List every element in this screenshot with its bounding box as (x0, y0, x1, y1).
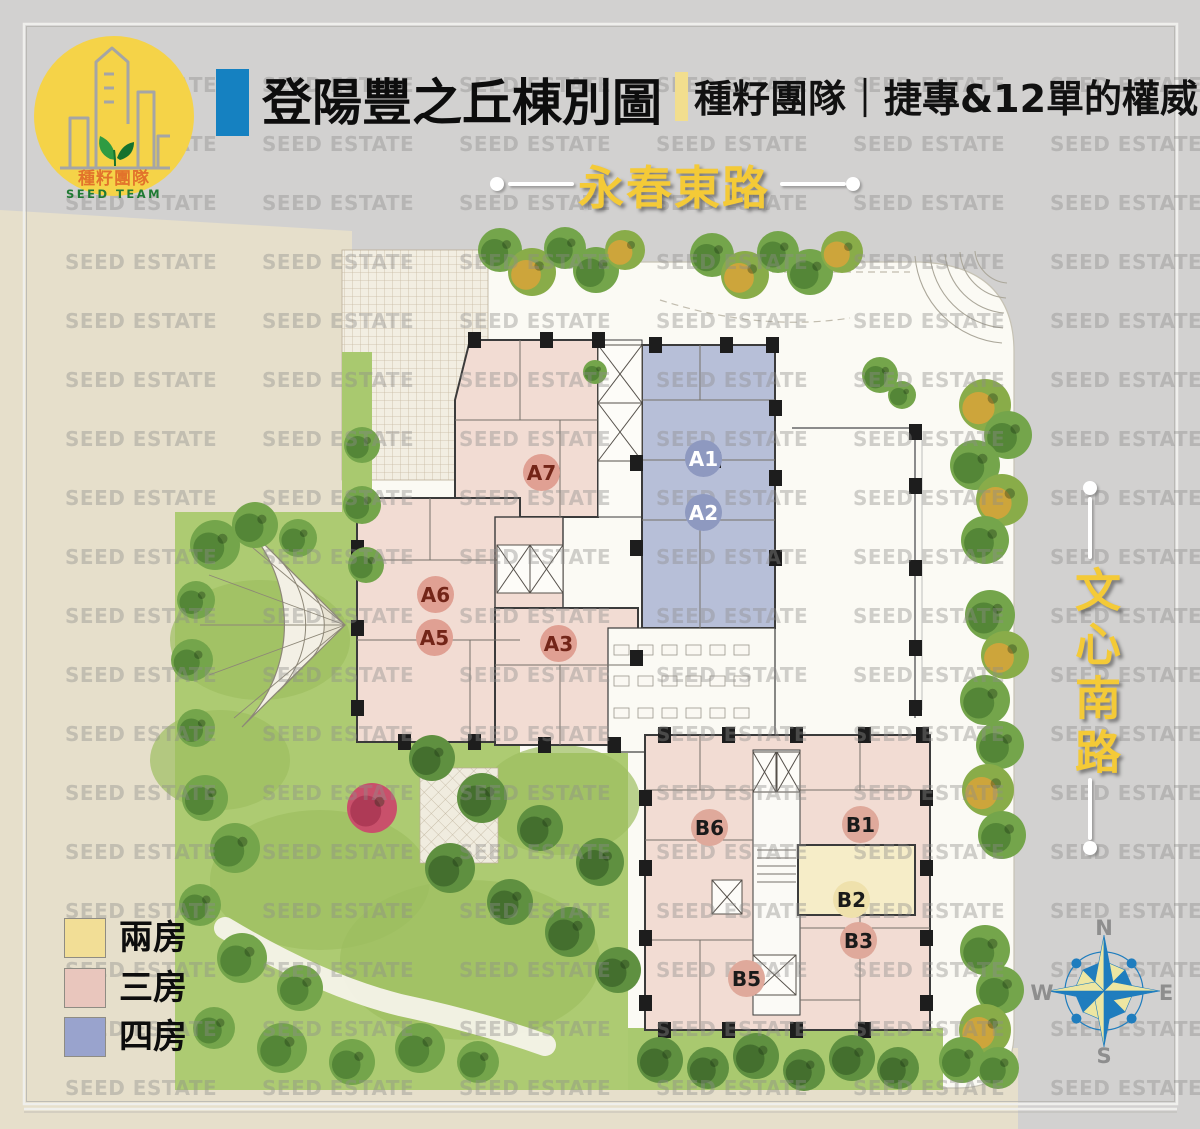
building-a7-three-room (455, 340, 598, 517)
site-plan-canvas (0, 0, 1200, 1129)
building-b2-two-room (798, 845, 915, 915)
building-a1-a2-four-room (642, 345, 775, 628)
